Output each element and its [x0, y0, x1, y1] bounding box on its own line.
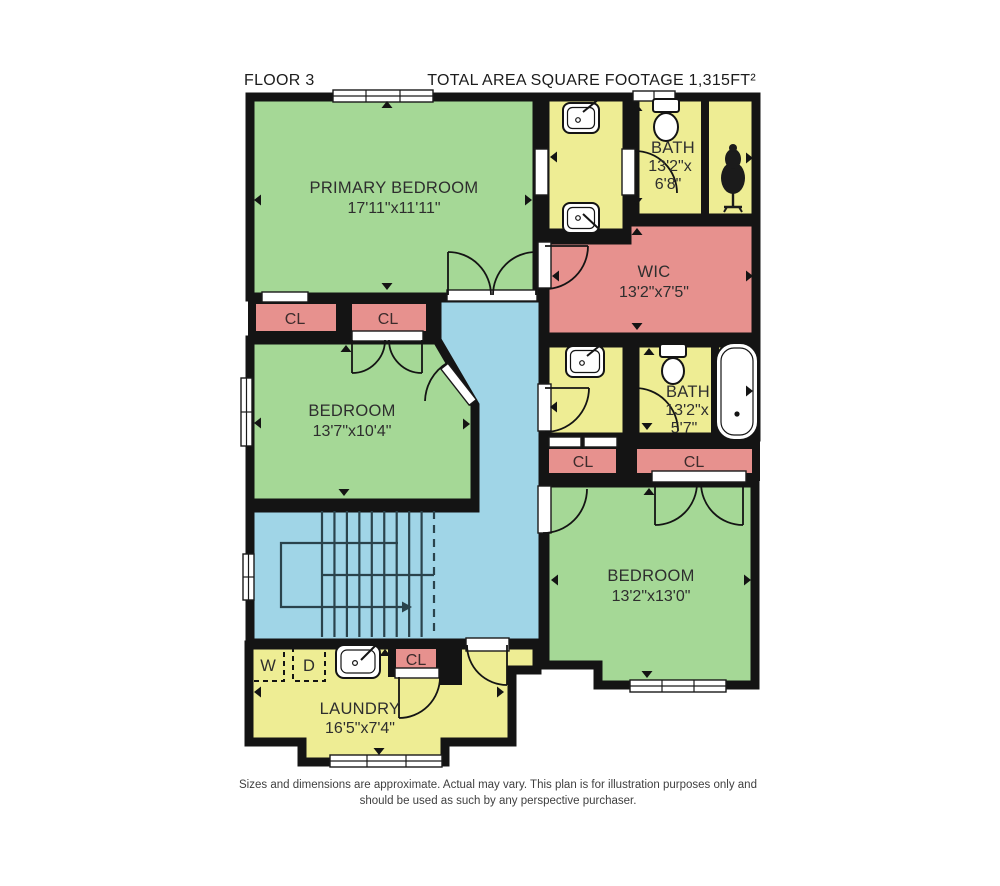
closet-label: CL: [684, 454, 705, 471]
closet-label: CL: [406, 652, 427, 669]
sink-icon: [563, 99, 599, 133]
door-opening: [538, 242, 551, 288]
closet-sill: [262, 292, 308, 302]
door-opening: [535, 149, 548, 195]
toilet-icon: [653, 99, 679, 141]
closet-sill: [549, 437, 581, 447]
disclaimer-line-2: should be used as such by any perspectiv…: [360, 795, 637, 807]
floorplan-image: FLOOR 3 TOTAL AREA SQUARE FOOTAGE 1,315F…: [0, 0, 1000, 886]
total-area-label: TOTAL AREA SQUARE FOOTAGE 1,315FT²: [427, 72, 756, 89]
closet-label: CL: [378, 311, 399, 328]
room-bedroom-mid: [250, 340, 475, 503]
washer-label: W: [260, 657, 276, 675]
room-dims-primary-bedroom: 17'11"x11'11": [347, 200, 440, 217]
closet-sill: [395, 668, 439, 678]
room-dims-bath-top-1: 13'2"x: [648, 158, 691, 175]
room-label-primary-bedroom: PRIMARY BEDROOM: [310, 179, 479, 197]
room-label-bath-top: BATH: [651, 139, 695, 157]
closet-sill: [584, 437, 617, 447]
room-dims-bath-mid-2: 5'7": [671, 420, 698, 437]
room-dims-bath-mid-1: 13'2"x: [665, 402, 708, 419]
door-opening: [622, 149, 635, 195]
sink-icon: [336, 642, 380, 678]
door-opening: [447, 290, 537, 301]
closet-sill: [352, 331, 423, 341]
sink-icon: [563, 203, 599, 233]
door-opening: [466, 638, 509, 651]
room-dims-bedroom-right: 13'2"x13'0": [612, 588, 691, 605]
room-dims-bath-top-2: 6'8": [655, 176, 682, 193]
room-primary-bedroom: [250, 97, 537, 297]
closet-label: CL: [285, 311, 306, 328]
closet-label: CL: [573, 454, 594, 471]
window: [333, 90, 433, 102]
window: [243, 554, 254, 600]
room-label-bedroom-right: BEDROOM: [607, 567, 694, 585]
room-dims-bedroom-mid: 13'7"x10'4": [313, 423, 392, 440]
dryer-label: D: [303, 657, 315, 675]
sink-icon: [566, 343, 604, 377]
room-label-wic: WIC: [638, 263, 671, 281]
window: [241, 378, 252, 446]
closet-sill: [652, 471, 746, 482]
window: [630, 680, 726, 692]
room-dims-laundry: 16'5"x7'4": [325, 720, 395, 737]
room-label-bath-mid: BATH: [666, 383, 710, 401]
disclaimer-line-1: Sizes and dimensions are approximate. Ac…: [239, 779, 757, 791]
door-opening: [538, 486, 551, 533]
floor-label: FLOOR 3: [244, 72, 315, 89]
room-label-bedroom-mid: BEDROOM: [308, 402, 395, 420]
toilet-icon: [660, 344, 686, 384]
window: [330, 755, 442, 767]
wall-stub-closets: [617, 441, 636, 479]
room-label-laundry: LAUNDRY: [320, 700, 401, 718]
room-dims-wic: 13'2"x7'5": [619, 284, 689, 301]
wall-stub-laundry: [440, 640, 462, 685]
floor-plan-svg: FLOOR 3 TOTAL AREA SQUARE FOOTAGE 1,315F…: [0, 0, 1000, 886]
door-opening: [538, 384, 551, 431]
